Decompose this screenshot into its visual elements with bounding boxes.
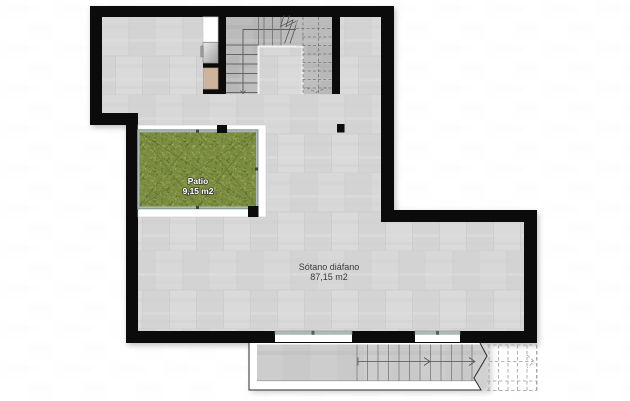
svg-text:9,15 m2: 9,15 m2 xyxy=(183,186,214,196)
svg-text:Sótano diáfano: Sótano diáfano xyxy=(299,262,360,272)
svg-text:Patio: Patio xyxy=(188,176,208,186)
svg-text:87,15 m2: 87,15 m2 xyxy=(310,272,348,282)
